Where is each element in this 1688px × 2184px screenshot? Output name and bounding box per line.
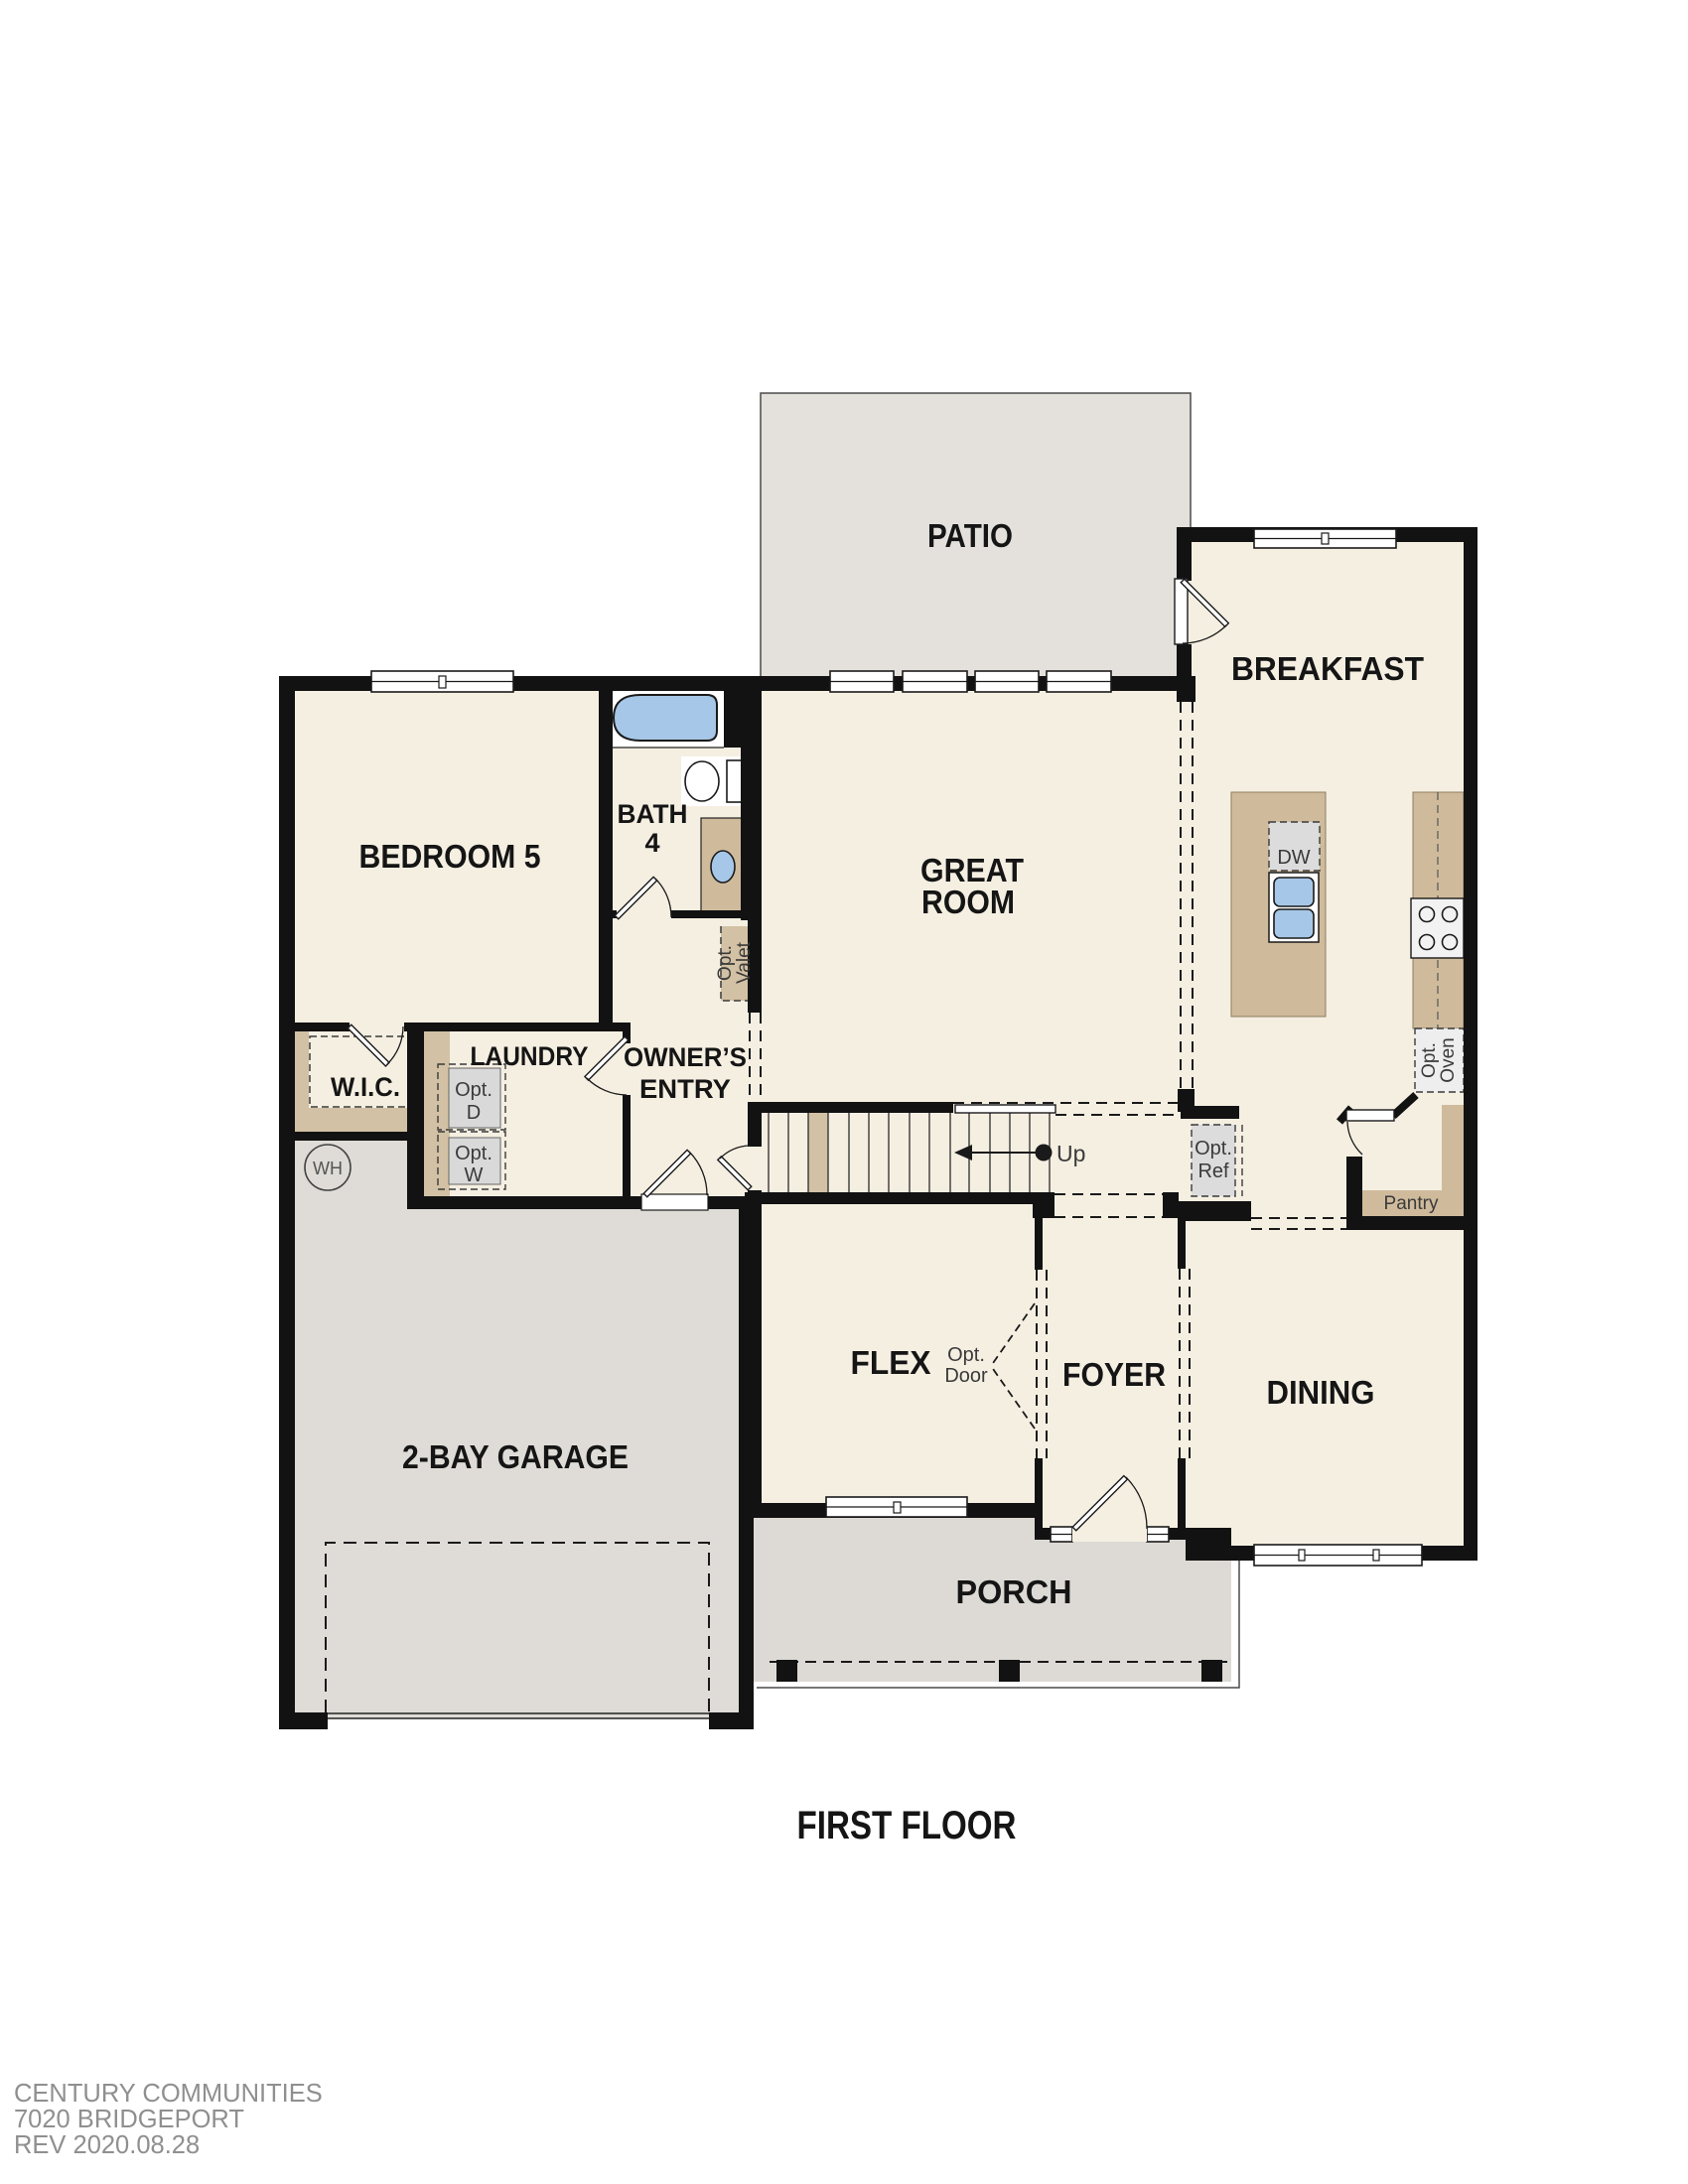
- svg-text:W: W: [465, 1164, 484, 1186]
- svg-text:2-BAY GARAGE: 2-BAY GARAGE: [402, 1438, 629, 1475]
- svg-text:BREAKFAST: BREAKFAST: [1231, 650, 1424, 687]
- svg-text:Opt.: Opt.: [1195, 1138, 1232, 1160]
- svg-text:Ref: Ref: [1197, 1160, 1229, 1182]
- svg-text:W.I.C.: W.I.C.: [331, 1072, 400, 1102]
- svg-text:FIRST FLOOR: FIRST FLOOR: [797, 1804, 1017, 1847]
- svg-text:ENTRY: ENTRY: [639, 1074, 731, 1104]
- svg-text:Valet: Valet: [734, 941, 755, 984]
- svg-text:LAUNDRY: LAUNDRY: [471, 1041, 589, 1071]
- svg-text:WH: WH: [313, 1159, 343, 1178]
- svg-text:PATIO: PATIO: [927, 517, 1013, 554]
- svg-text:Opt.: Opt.: [947, 1344, 985, 1366]
- svg-text:REV 2020.08.28: REV 2020.08.28: [14, 2131, 200, 2159]
- svg-text:Opt.: Opt.: [1419, 1042, 1440, 1078]
- svg-text:Opt.: Opt.: [455, 1079, 492, 1101]
- svg-text:BATH: BATH: [618, 799, 688, 829]
- svg-text:DINING: DINING: [1267, 1374, 1375, 1411]
- svg-text:OWNER’S: OWNER’S: [624, 1042, 747, 1072]
- svg-text:7020 BRIDGEPORT: 7020 BRIDGEPORT: [14, 2106, 244, 2133]
- svg-text:Door: Door: [944, 1365, 988, 1387]
- svg-text:FLEX: FLEX: [851, 1344, 931, 1381]
- svg-text:ROOM: ROOM: [921, 884, 1015, 920]
- svg-text:BEDROOM 5: BEDROOM 5: [359, 838, 541, 875]
- svg-text:Up: Up: [1056, 1141, 1085, 1166]
- svg-text:FOYER: FOYER: [1062, 1356, 1166, 1393]
- svg-text:D: D: [467, 1102, 481, 1124]
- svg-text:DW: DW: [1277, 847, 1310, 869]
- svg-text:Opt.: Opt.: [715, 945, 736, 981]
- svg-text:PORCH: PORCH: [956, 1573, 1072, 1610]
- svg-text:Oven: Oven: [1438, 1037, 1459, 1082]
- svg-text:CENTURY COMMUNITIES: CENTURY COMMUNITIES: [14, 2080, 323, 2108]
- svg-text:4: 4: [644, 828, 659, 858]
- svg-text:Opt.: Opt.: [455, 1143, 492, 1164]
- svg-text:Pantry: Pantry: [1384, 1193, 1439, 1214]
